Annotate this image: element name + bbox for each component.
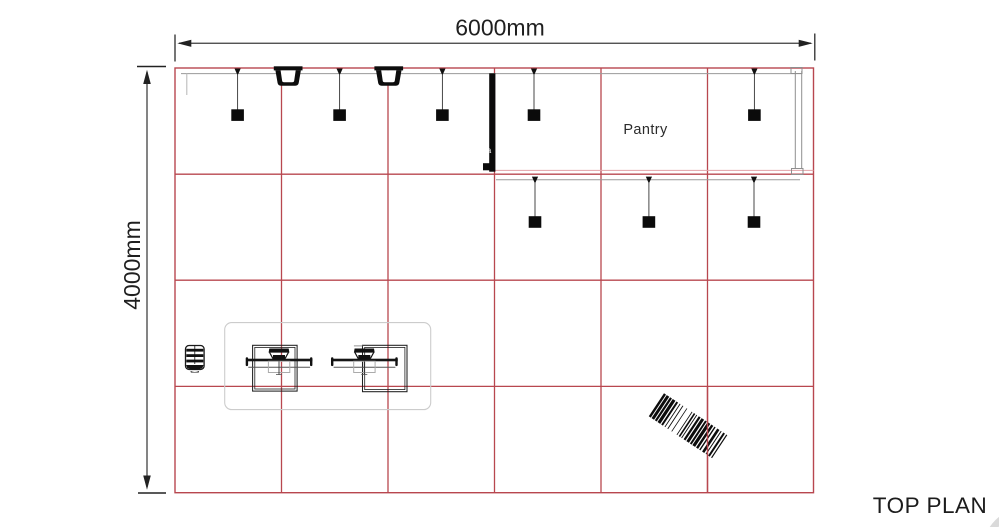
svg-text:6000mm: 6000mm [455, 15, 544, 41]
svg-text:TOP PLAN: TOP PLAN [873, 493, 987, 518]
svg-text:a: a [487, 146, 492, 155]
svg-text:4000mm: 4000mm [119, 220, 145, 309]
svg-text:Pantry: Pantry [623, 122, 668, 138]
